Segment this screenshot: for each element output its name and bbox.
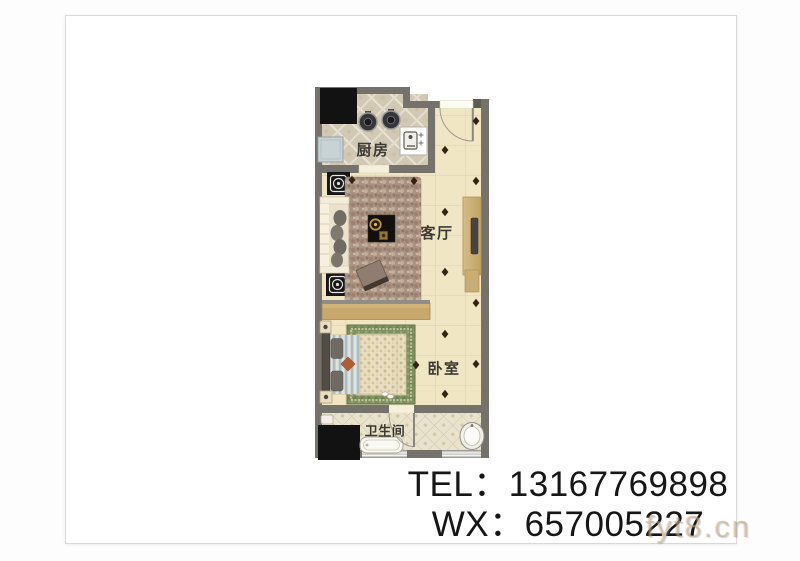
page-background: 厨房 客厅 卧室 卫生间 TEL：13167769898 WX：65700522… xyxy=(0,0,800,561)
wash-basin-icon xyxy=(460,423,484,450)
coffee-table xyxy=(368,215,395,242)
floor-plan-image: 厨房 客厅 卧室 卫生间 xyxy=(315,85,489,460)
listing-card: 厨房 客厅 卧室 卫生间 TEL：13167769898 WX：65700522… xyxy=(65,15,737,544)
bath-door-opening xyxy=(389,406,414,413)
room-label-kitchen: 厨房 xyxy=(356,141,389,159)
bathtub xyxy=(360,437,403,453)
watermark: fyt8.cn xyxy=(646,509,751,545)
phone-number: TEL：13167769898 xyxy=(396,465,740,505)
sofa xyxy=(320,197,349,273)
divider-cabinet xyxy=(322,300,430,320)
room-label-bathroom: 卫生间 xyxy=(365,424,406,439)
nightstand xyxy=(320,391,332,403)
room-label-living: 客厅 xyxy=(419,224,453,242)
headboard xyxy=(322,333,330,396)
bed xyxy=(322,333,397,396)
pillow xyxy=(331,339,343,359)
entry-door-opening xyxy=(440,101,473,109)
shaft-block-top xyxy=(320,88,357,124)
window-icon xyxy=(442,451,481,458)
basin-unit-icon xyxy=(400,127,427,155)
nightstand xyxy=(320,321,331,333)
pillow xyxy=(331,371,343,391)
kitchen-door-opening xyxy=(359,165,389,173)
tv-console xyxy=(463,197,481,292)
kitchen-sink-icon xyxy=(318,137,343,162)
tv-icon xyxy=(471,218,478,254)
toilet-icon xyxy=(321,415,333,424)
shaft-block-bottom xyxy=(318,425,360,460)
room-label-bedroom: 卧室 xyxy=(427,360,460,378)
